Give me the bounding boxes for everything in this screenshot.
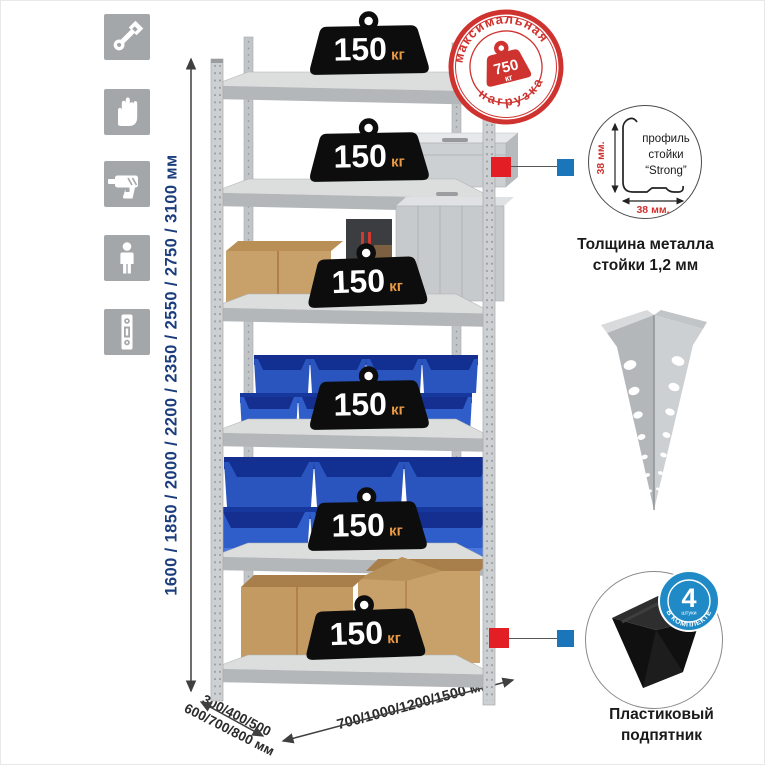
- shelf-load-badge: 150кг: [306, 116, 431, 186]
- svg-text:“Strong”: “Strong”: [645, 165, 687, 177]
- max-load-stamp: максимальная нагрузка 750 кг: [444, 6, 568, 128]
- shelf-load-badge: 150кг: [306, 364, 431, 434]
- shelf-load-badge: 150кг: [304, 485, 429, 555]
- svg-text:стойки: стойки: [648, 149, 683, 161]
- svg-text:4: 4: [681, 583, 696, 613]
- callout-line-bottom: [507, 638, 559, 639]
- shelf-load-badge: 150кг: [306, 9, 431, 79]
- callout-marker-red-bottom: [489, 628, 509, 648]
- callout-marker-blue-bottom: [557, 630, 574, 647]
- quantity-badge: в комплекте 4 штуки: [657, 569, 721, 633]
- angle-post-illustration: [597, 307, 712, 519]
- svg-text:38 мм.: 38 мм.: [595, 141, 607, 174]
- callout-marker-blue-top: [557, 159, 574, 176]
- shelf-load-badge: 150кг: [304, 240, 430, 312]
- svg-text:профиль: профиль: [642, 133, 690, 145]
- shelf-load-badge: 150кг: [302, 592, 428, 664]
- svg-text:38 мм.: 38 мм.: [636, 204, 669, 216]
- svg-text:штуки: штуки: [681, 611, 696, 617]
- post-profile-detail: 38 мм. 38 мм. профиль стойки “Strong”: [588, 105, 702, 219]
- callout-marker-red-top: [491, 157, 511, 177]
- product-infographic: 1600 / 1850 / 2000 / 2200 / 2350 / 2550 …: [0, 0, 765, 765]
- callout-line-top: [509, 166, 559, 167]
